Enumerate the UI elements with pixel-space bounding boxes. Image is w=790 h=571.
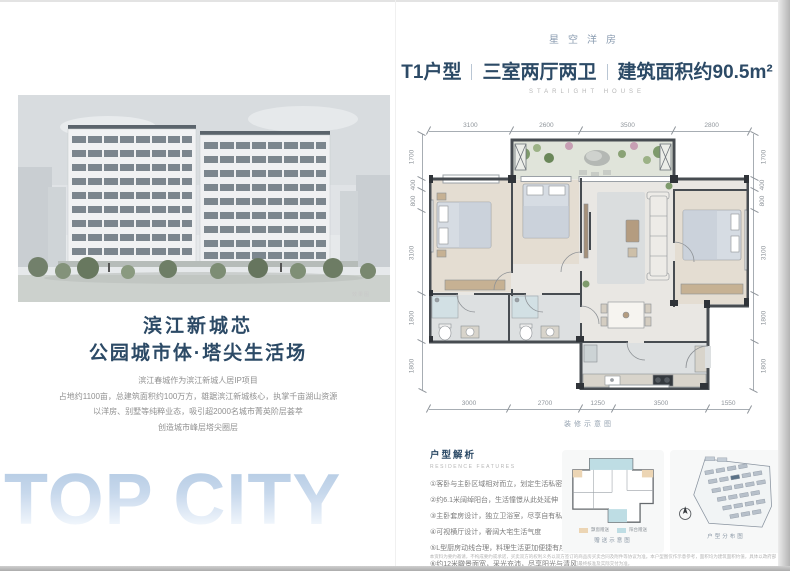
topcity-watermark: TOP CITY bbox=[4, 464, 341, 536]
dim-label: 2600 bbox=[539, 122, 553, 129]
legend-swatch-orange bbox=[579, 528, 588, 533]
dim-label: 3500 bbox=[654, 400, 668, 407]
dim-segment: 1700 bbox=[409, 134, 423, 179]
dim-segment: 2600 bbox=[512, 118, 581, 132]
dim-label: 1800 bbox=[408, 359, 415, 373]
dim-segment: 3100 bbox=[409, 211, 423, 294]
legend-swatch-blue bbox=[617, 528, 626, 533]
dim-segment: 3500 bbox=[614, 396, 707, 410]
north-compass-icon bbox=[680, 506, 691, 519]
dim-segment: 1800 bbox=[409, 294, 423, 342]
dim-label: 3500 bbox=[620, 122, 634, 129]
paragraph-line: 创造城市峰层塔尖圈层 bbox=[10, 420, 386, 436]
dim-segment: 1800 bbox=[753, 294, 767, 342]
legend-label: 阳台赠送 bbox=[629, 527, 647, 533]
mini-structure-plan bbox=[568, 455, 658, 525]
dim-label: 1800 bbox=[408, 311, 415, 325]
subtitle-en: STARLIGHT HOUSE bbox=[396, 89, 778, 95]
dim-label: 800 bbox=[759, 195, 766, 206]
dim-label: 1800 bbox=[761, 359, 768, 373]
dim-segment: 1700 bbox=[753, 134, 767, 179]
dim-segment: 3100 bbox=[429, 118, 512, 132]
paragraph-line: 滨江春城作为滨江新城人居IP项目 bbox=[10, 373, 386, 389]
paragraph-line: 以洋房、别墅等纯粹业态，吸引超2000名城市菁英阶层荟萃 bbox=[10, 404, 386, 420]
dim-label: 400 bbox=[759, 179, 766, 190]
dim-segment: 2700 bbox=[509, 396, 581, 410]
dim-label: 3100 bbox=[463, 122, 477, 129]
legend-item: 阳台赠送 bbox=[617, 527, 647, 533]
dim-label: 1250 bbox=[590, 400, 604, 407]
dim-segment: 800 bbox=[753, 190, 767, 211]
dim-label: 3000 bbox=[462, 400, 476, 407]
dim-label: 1550 bbox=[721, 400, 735, 407]
legend-item: 飘窗赠送 bbox=[579, 527, 609, 533]
page-edge-right bbox=[778, 0, 790, 571]
left-headline-1: 滨江新城芯 bbox=[0, 311, 396, 338]
furniture bbox=[432, 183, 743, 388]
brochure-page: 效果图 滨江新城芯 公园城市体·塔尖生活场 滨江春城作为滨江新城人居IP项目 占… bbox=[0, 0, 790, 571]
dim-label: 1700 bbox=[408, 149, 415, 163]
unit-title-part2: 三室两厅两卫 bbox=[482, 62, 596, 83]
unit-title-part3: 建筑面积约90.5m² bbox=[618, 62, 773, 83]
dim-segment: 1550 bbox=[708, 396, 749, 410]
unit-title-part1: T1户型 bbox=[401, 62, 461, 83]
floorplan-caption: 装修示意图 bbox=[429, 419, 749, 429]
building-rendering-art bbox=[18, 95, 390, 302]
structure-legend: 飘窗赠送 阳台赠送 bbox=[579, 527, 647, 533]
dim-segment: 3000 bbox=[429, 396, 509, 410]
dim-label: 1800 bbox=[761, 311, 768, 325]
floorplan-drawing bbox=[429, 134, 749, 390]
floorplan-dims-bottom: 3000 2700 1250 3500 1550 bbox=[429, 396, 749, 410]
mini-siteplan-card: 户型分布图 bbox=[670, 450, 782, 553]
dim-label: 800 bbox=[410, 195, 417, 206]
legend-label: 飘窗赠送 bbox=[591, 527, 609, 533]
dim-label: 3100 bbox=[761, 245, 768, 259]
mini-structure-caption: 赠送示意图 bbox=[594, 536, 632, 544]
floorplan-dims-left: 1700 400 800 3100 1800 1800 bbox=[409, 134, 423, 390]
dim-segment: 1250 bbox=[581, 396, 614, 410]
dim-label: 3100 bbox=[408, 245, 415, 259]
mini-structure-card: 飘窗赠送 阳台赠送 赠送示意图 bbox=[562, 450, 664, 553]
dim-segment: 2800 bbox=[674, 118, 749, 132]
paragraph-line: 占地约1100亩，总建筑面积约100万方，雄踞滨江新城核心，执掌千亩湖山资源 bbox=[10, 389, 386, 405]
dim-label: 1700 bbox=[761, 149, 768, 163]
entry-gap bbox=[705, 346, 711, 368]
title-separator bbox=[471, 64, 472, 80]
dim-segment: 3500 bbox=[581, 118, 674, 132]
page-edge-bottom bbox=[0, 566, 790, 571]
mini-siteplan-map bbox=[674, 455, 778, 529]
dim-label: 2800 bbox=[704, 122, 718, 129]
building-rendering bbox=[18, 95, 390, 302]
left-headline-2: 公园城市体·塔尖生活场 bbox=[0, 338, 396, 365]
dim-label: 2700 bbox=[538, 400, 552, 407]
dim-segment: 1800 bbox=[753, 342, 767, 390]
panel-divider bbox=[395, 0, 396, 571]
floorplan-dims-top: 3100 2600 3500 2800 bbox=[429, 118, 749, 132]
left-paragraph: 滨江春城作为滨江新城人居IP项目 占地约1100亩，总建筑面积约100万方，雄踞… bbox=[10, 373, 386, 435]
dim-label: 400 bbox=[410, 179, 417, 190]
unit-title: T1户型三室两厅两卫建筑面积约90.5m² bbox=[396, 57, 778, 84]
render-caption: 效果图 bbox=[352, 291, 370, 298]
mini-siteplan-caption: 户型分布图 bbox=[707, 532, 745, 540]
floorplan-dims-right: 1700 400 800 3100 1800 1800 bbox=[753, 134, 767, 390]
dim-segment: 1800 bbox=[409, 342, 423, 390]
dim-segment: 3100 bbox=[753, 211, 767, 294]
title-separator bbox=[607, 64, 608, 80]
dim-segment: 800 bbox=[409, 190, 423, 211]
eyebrow-title: 星空洋房 bbox=[396, 31, 778, 46]
